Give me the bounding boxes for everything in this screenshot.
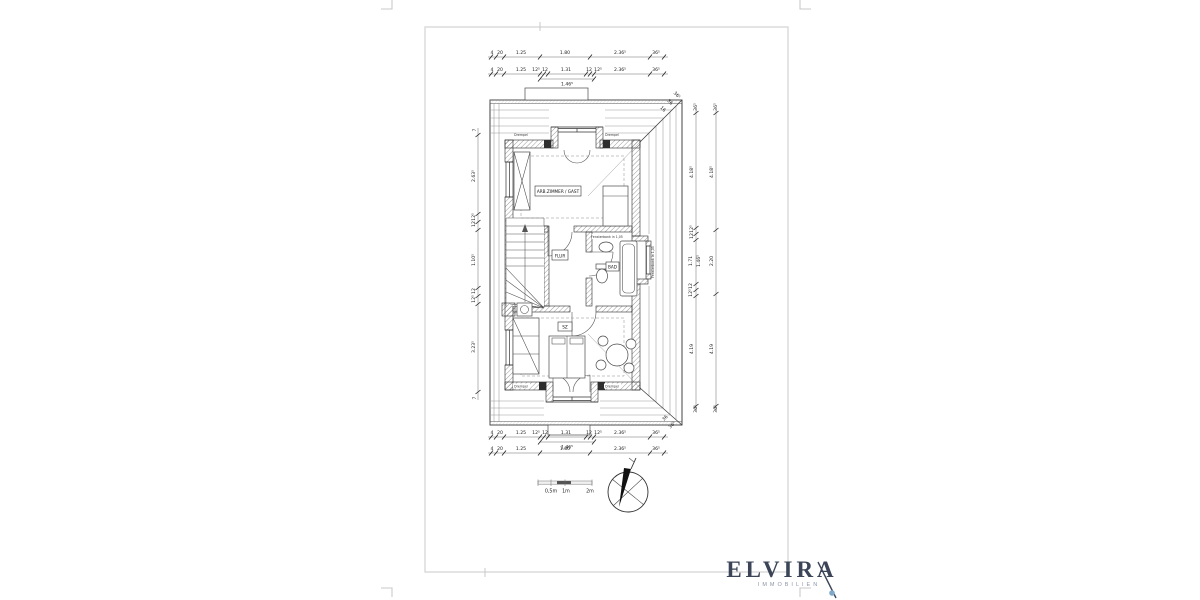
dim-label: 2.20 [709, 256, 715, 266]
dim-label: 12 [471, 221, 477, 227]
dim-hip-top-1: 16 [659, 105, 667, 113]
dim-label: 4.18⁵ [689, 166, 695, 178]
note-knee-top-right: Drempel [605, 133, 619, 137]
scale-label-2m: 2m [586, 489, 594, 495]
dim-label: 4.19 [709, 344, 715, 354]
dim-chain-top-outer: 4201.251.802.36⁵36⁵ [488, 50, 668, 60]
dim-label: 36⁵ [693, 405, 699, 413]
dim-label: 1.25 [516, 50, 526, 56]
dim-label: 36⁵ [713, 103, 719, 111]
dim-label: 12 [542, 430, 548, 436]
dim-label: 4 [491, 430, 494, 436]
dim-label: 1.10⁵ [471, 254, 477, 266]
dim-label: 2.36⁵ [614, 50, 626, 56]
note-sill-right: Fensterbank in 1,05 [651, 246, 655, 278]
dim-label: 12 [471, 288, 477, 294]
dim-hip-top-2: 36 [666, 98, 674, 106]
dim-label: 12⁵ [688, 289, 694, 297]
dim-label: 1.31 [561, 430, 571, 436]
dim-label: 12 [542, 67, 548, 73]
scale-label-05m: 0,5m [545, 489, 558, 495]
dim-label: 12⁵ [471, 213, 477, 221]
dim-label: 12⁵ [594, 67, 602, 73]
dim-label: 4 [491, 446, 494, 452]
dim-label: 7 [472, 128, 478, 131]
dim-label: 3.23⁵ [471, 341, 477, 353]
dim-label: 1.80 [560, 50, 570, 56]
dim-label: 12 [688, 283, 694, 289]
dim-chain-right-inner: 36⁵4.18⁵12⁵121.711.46⁵1212⁵4.1936⁵ [688, 103, 702, 413]
dim-bottom-sub: 1.46⁵ [561, 445, 573, 451]
brand-subtitle: IMMOBILIEN [722, 582, 842, 588]
north-arrow-compass [608, 458, 648, 512]
dim-label: 36⁵ [652, 50, 660, 56]
dim-label: 1.31 [561, 67, 571, 73]
floor-plan-canvas: ARB.ZIMMER / GAST FLUR BAD SZ Fensterban… [0, 0, 1200, 600]
dim-top-sub: 1.46⁵ [561, 82, 573, 88]
dim-label: 4 [491, 67, 494, 73]
dim-label: 2.63⁵ [471, 170, 477, 182]
room-label-bath: BAD [608, 265, 617, 270]
dim-label: 36⁵ [713, 405, 719, 413]
dim-chain-top-inner: 4201.2512⁵121.311212⁵2.36⁵36⁵ [488, 67, 668, 77]
dim-label: 12⁵ [594, 430, 602, 436]
dim-label: 36⁵ [652, 67, 660, 73]
room-label-study: ARB.ZIMMER / GAST [537, 189, 580, 194]
dim-chain-right-outer: 36⁵4.18⁵2.204.1936⁵ [709, 103, 719, 413]
dim-label: 12 [586, 430, 592, 436]
dim-label: 2.36⁵ [614, 67, 626, 73]
dim-hip-bottom-1: 36 [661, 414, 669, 422]
dim-label: 1.71 [688, 256, 694, 266]
dim-label: 1.25 [516, 446, 526, 452]
dim-chain-left: 72.63⁵12⁵121.10⁵1212⁵3.23⁵7 [471, 128, 481, 400]
dim-label: 4.18⁵ [709, 166, 715, 178]
furniture-bedroom [502, 303, 636, 378]
note-knee-bottom-left: Drempel [514, 385, 528, 389]
dim-label: 12⁵ [532, 67, 540, 73]
note-sill-top: Fensterbank in 1,05 [591, 235, 623, 239]
note-knee-bottom-right: Drempel [605, 385, 619, 389]
stairs [506, 218, 544, 308]
dim-label: 20 [497, 50, 503, 56]
dim-label: 12 [586, 67, 592, 73]
dim-label: 12 [689, 233, 695, 239]
dim-label: 20 [497, 67, 503, 73]
dim-label: 2.36⁵ [614, 430, 626, 436]
note-knee-top-left: Drempel [514, 133, 528, 137]
drawing-sheet: ARB.ZIMMER / GAST FLUR BAD SZ Fensterban… [0, 0, 1200, 600]
dim-chain-bottom-outer: 4201.251.802.36⁵36⁵ [488, 446, 668, 456]
dim-label: 36⁵ [652, 446, 660, 452]
dim-hip-top-3: 36⁵ [672, 90, 682, 100]
brand-logo: ELVIRA IMMOBILIEN [722, 558, 842, 588]
room-label-hall: FLUR [555, 254, 566, 259]
room-label-bedroom: SZ [562, 325, 568, 330]
north-needle [619, 468, 631, 507]
brand-name: ELVIRA [722, 558, 842, 582]
dim-label: 1.25 [516, 67, 526, 73]
dim-label: 36⁵ [693, 103, 699, 111]
dim-label: 1.25 [516, 430, 526, 436]
dim-label: 20 [497, 446, 503, 452]
scale-bar: 0,5m 1m 2m [538, 480, 594, 495]
dim-label: 20 [497, 430, 503, 436]
dim-label: 36⁵ [652, 430, 660, 436]
page-frame [381, 0, 811, 597]
dim-label: 12⁵ [532, 430, 540, 436]
dim-label: 4.19 [689, 344, 695, 354]
scale-label-1m: 1m [562, 489, 570, 495]
dim-label: 7 [472, 396, 478, 399]
dim-label: 4 [491, 50, 494, 56]
dim-label: 2.36⁵ [614, 446, 626, 452]
dim-label: 12⁵ [689, 225, 695, 233]
dim-label: 1.46⁵ [696, 255, 702, 267]
dim-label: 12⁵ [471, 295, 477, 303]
